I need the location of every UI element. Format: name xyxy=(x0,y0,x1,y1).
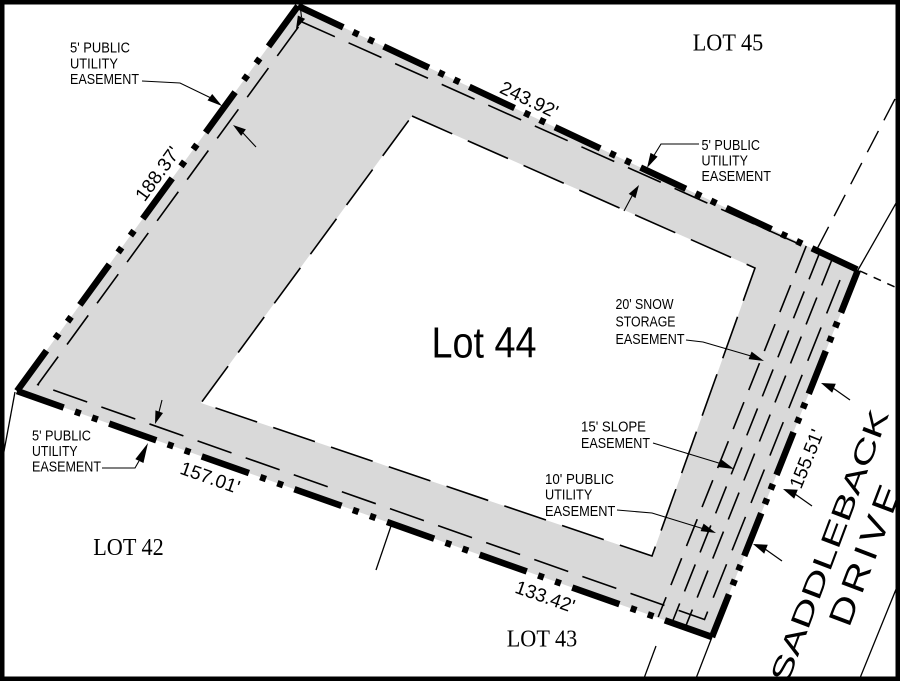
svg-text:Lot 44: Lot 44 xyxy=(432,320,537,368)
svg-text:15' SLOPE: 15' SLOPE xyxy=(581,419,646,436)
svg-text:UTILITY: UTILITY xyxy=(702,153,749,170)
svg-text:STORAGE: STORAGE xyxy=(616,313,676,330)
svg-text:EASEMENT: EASEMENT xyxy=(616,331,685,348)
svg-text:EASEMENT: EASEMENT xyxy=(702,168,772,185)
svg-text:5' PUBLIC: 5' PUBLIC xyxy=(702,137,761,154)
svg-text:UTILITY: UTILITY xyxy=(32,443,78,460)
svg-text:5' PUBLIC: 5' PUBLIC xyxy=(70,40,130,57)
svg-text:5' PUBLIC: 5' PUBLIC xyxy=(32,428,91,445)
svg-text:EASEMENT: EASEMENT xyxy=(32,459,101,476)
svg-text:EASEMENT: EASEMENT xyxy=(581,435,650,452)
svg-text:20' SNOW: 20' SNOW xyxy=(616,296,675,313)
svg-text:EASEMENT: EASEMENT xyxy=(545,503,615,520)
svg-text:LOT 42: LOT 42 xyxy=(93,535,164,561)
svg-text:UTILITY: UTILITY xyxy=(545,486,592,503)
svg-text:LOT 45: LOT 45 xyxy=(693,31,764,57)
svg-text:LOT 43: LOT 43 xyxy=(507,627,578,653)
svg-text:UTILITY: UTILITY xyxy=(70,55,118,72)
svg-text:EASEMENT: EASEMENT xyxy=(70,71,139,88)
